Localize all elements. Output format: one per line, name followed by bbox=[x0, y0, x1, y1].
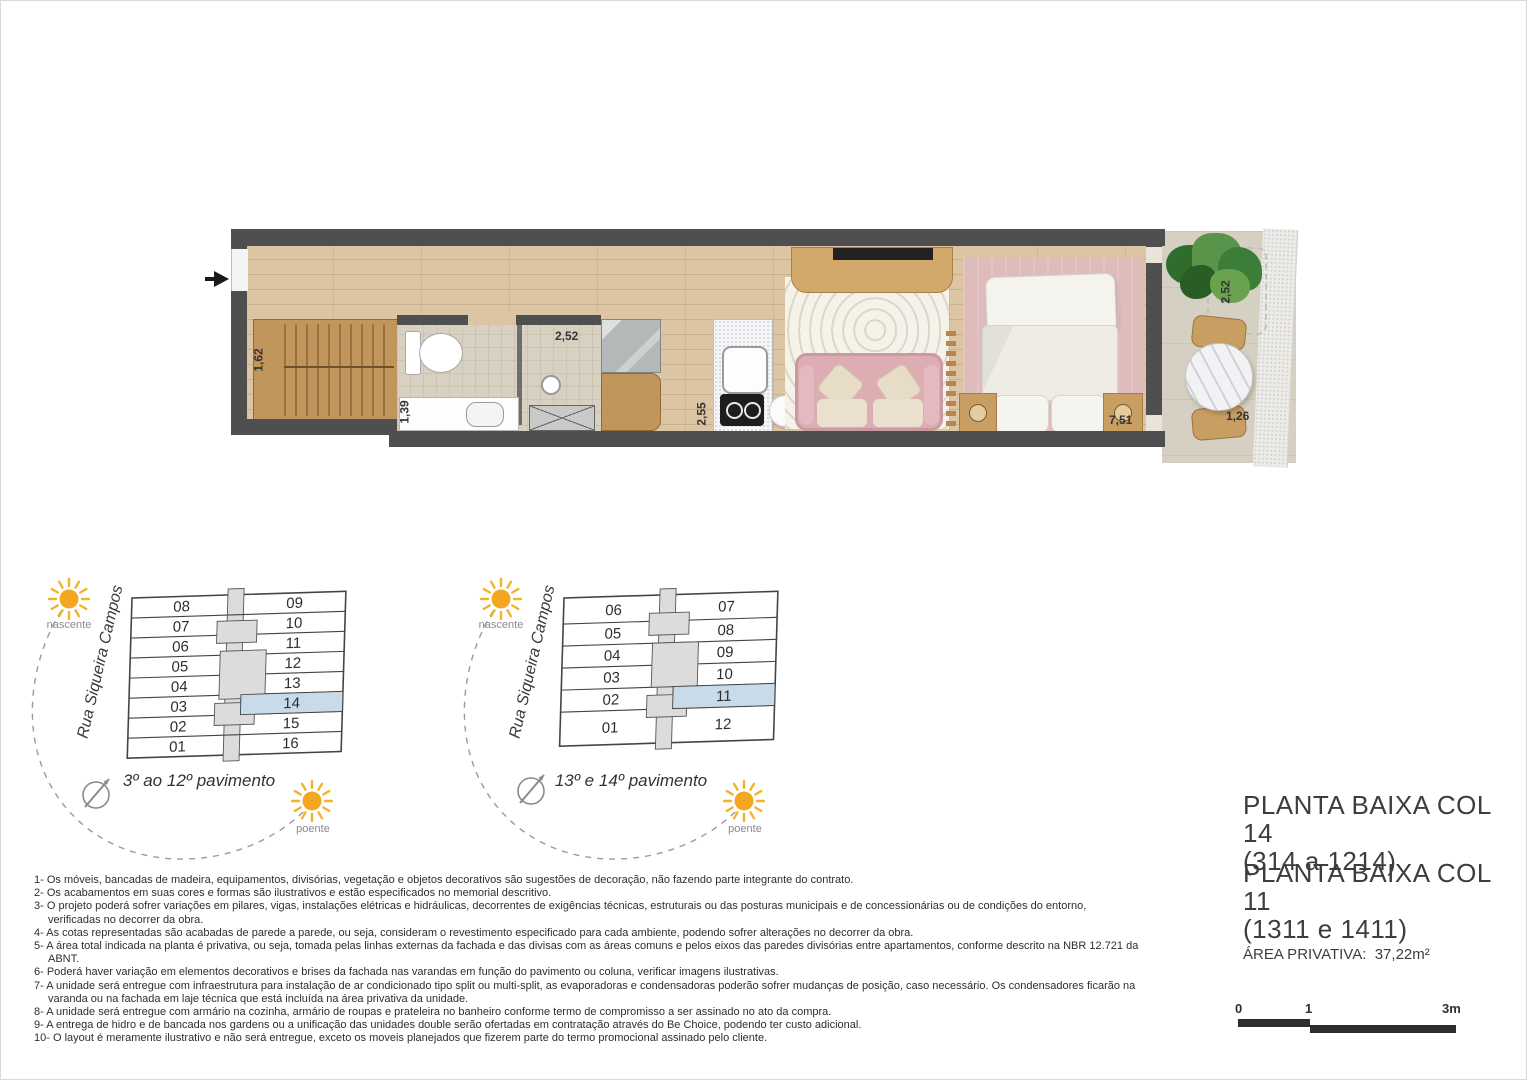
keyplan-2-caption: 13º e 14º pavimento bbox=[551, 771, 711, 791]
lamp-icon bbox=[969, 404, 987, 422]
keyplan-1-caption: 3º ao 12º pavimento bbox=[119, 771, 279, 791]
shower-mixer-icon bbox=[541, 375, 561, 395]
unit-cell: 03 bbox=[170, 698, 187, 716]
disclaimer-notes: 1- Os móveis, bancadas de madeira, equip… bbox=[34, 874, 1139, 1046]
note-item: 9- A entrega de hidro e de bancada nos g… bbox=[34, 1019, 1139, 1032]
sun-west-label: poente bbox=[713, 823, 777, 835]
north-compass-icon bbox=[511, 769, 551, 813]
dim-balcony-width: 1,26 bbox=[1226, 409, 1249, 423]
note-item: 1- Os móveis, bancadas de madeira, equip… bbox=[34, 874, 1139, 887]
north-compass-icon bbox=[76, 773, 116, 817]
unit-cell: 16 bbox=[282, 735, 299, 753]
scale-tick-3m: 3m bbox=[1442, 1001, 1461, 1016]
shaft-box bbox=[529, 405, 595, 431]
bathroom: 2,52 bbox=[397, 321, 601, 431]
unit-cell: 10 bbox=[716, 666, 733, 684]
sofa-seat-right bbox=[873, 399, 923, 427]
dim-bath-depth: 1,39 bbox=[398, 400, 412, 423]
plan-title-2: PLANTA BAIXA COL 11 bbox=[1243, 859, 1526, 915]
unit-cell: 02 bbox=[602, 691, 619, 709]
unit-cell: 01 bbox=[169, 738, 186, 756]
cabinet-wood bbox=[601, 373, 661, 431]
sofa bbox=[795, 353, 943, 431]
unit-cell-highlighted: 14 bbox=[283, 695, 300, 713]
unit-cell: 06 bbox=[172, 638, 189, 656]
note-item: 2- Os acabamentos em suas cores e formas… bbox=[34, 887, 1139, 900]
unit-cell: 06 bbox=[605, 602, 622, 620]
sun-icon-nascente bbox=[478, 576, 524, 622]
dim-kitchen-depth: 2,55 bbox=[695, 402, 709, 425]
unit-cell: 09 bbox=[286, 595, 303, 613]
kitchen-counter bbox=[713, 319, 773, 433]
note-item: 8- A unidade será entregue com armário n… bbox=[34, 1006, 1139, 1019]
key-plan-2: 06 05 04 03 02 01 07 08 09 10 11 12 bbox=[548, 586, 798, 786]
balcony-door-gap-top bbox=[1146, 247, 1162, 263]
unit-cell: 07 bbox=[718, 598, 735, 616]
slat-divider bbox=[946, 331, 956, 429]
unit-cell-highlighted: 11 bbox=[716, 688, 732, 705]
plan-subtitle-2: (1311 e 1411) bbox=[1243, 915, 1526, 943]
unit-cell: 05 bbox=[604, 625, 621, 643]
scale-tick-0: 0 bbox=[1235, 1001, 1242, 1016]
wardrobe bbox=[253, 319, 399, 421]
unit-cell: 12 bbox=[714, 716, 731, 734]
wall-top bbox=[231, 229, 1165, 246]
key-plan-1: 08 07 06 05 04 03 02 01 09 10 11 12 13 1… bbox=[116, 586, 366, 786]
plan-title-1: PLANTA BAIXA COL 14 bbox=[1243, 791, 1526, 847]
balcony: 2,52 1,26 bbox=[1162, 231, 1296, 463]
unit-cell: 04 bbox=[604, 647, 621, 665]
unit-cell: 04 bbox=[171, 678, 188, 696]
unit-cell: 03 bbox=[603, 669, 620, 687]
tv-icon bbox=[833, 248, 933, 260]
sun-east-label: nascente bbox=[37, 619, 101, 631]
sun-east-label: nascente bbox=[469, 619, 533, 631]
cabinet-mirror bbox=[601, 319, 661, 373]
scale-bar-segment-1 bbox=[1238, 1019, 1310, 1027]
note-item: 10- O layout é meramente ilustrativo e n… bbox=[34, 1032, 1139, 1045]
bed bbox=[979, 271, 1119, 433]
bed-duvet bbox=[982, 325, 1118, 401]
area-value: 37,22m² bbox=[1375, 946, 1430, 963]
unit-cell: 08 bbox=[717, 622, 734, 640]
cooktop-icon bbox=[720, 394, 764, 426]
kitchen-sink-icon bbox=[722, 346, 768, 394]
unit-cell: 09 bbox=[717, 644, 734, 662]
dim-bedroom: 7,51 bbox=[1109, 413, 1132, 427]
floor-plan: 2,52 1,26 1,62 2,52 1,39 bbox=[229, 227, 1303, 467]
unit-cell: 05 bbox=[171, 658, 188, 676]
note-item: 5- A área total indicada na planta é pri… bbox=[34, 940, 1139, 966]
scale-bar-segment-2 bbox=[1310, 1025, 1456, 1033]
balcony-table bbox=[1185, 343, 1253, 411]
scale-tick-1: 1 bbox=[1305, 1001, 1312, 1016]
bed-foot-cushion-right bbox=[1051, 395, 1107, 433]
unit-cell: 08 bbox=[173, 598, 190, 616]
wall-bottom-main bbox=[389, 431, 1165, 447]
sofa-seat-left bbox=[817, 399, 867, 427]
dim-bath-width: 2,52 bbox=[555, 329, 578, 343]
drawing-sheet: 2,52 1,26 1,62 2,52 1,39 bbox=[0, 0, 1527, 1080]
unit-cell: 12 bbox=[284, 655, 301, 673]
dim-balcony-depth: 2,52 bbox=[1219, 280, 1233, 303]
toilet-bowl-icon bbox=[419, 333, 463, 373]
note-item: 3- O projeto poderá sofrer variações em … bbox=[34, 900, 1139, 926]
sun-icon-poente bbox=[289, 778, 335, 824]
unit-cell: 02 bbox=[170, 718, 187, 736]
sun-icon-nascente bbox=[46, 576, 92, 622]
plant-icon bbox=[1166, 233, 1266, 309]
dim-closet: 1,62 bbox=[252, 348, 266, 371]
unit-cell: 11 bbox=[285, 635, 301, 652]
note-item: 4- As cotas representadas são acabadas d… bbox=[34, 927, 1139, 940]
sun-icon-poente bbox=[721, 778, 767, 824]
bed-foot-cushion-left bbox=[993, 395, 1049, 433]
unit-cell: 10 bbox=[285, 615, 302, 633]
sink-basin-icon bbox=[466, 402, 504, 427]
vanity-counter bbox=[399, 397, 519, 431]
unit-cell: 15 bbox=[282, 715, 299, 733]
balcony-door-gap-bottom bbox=[1146, 415, 1162, 431]
sun-west-label: poente bbox=[281, 823, 345, 835]
unit-cell: 07 bbox=[172, 618, 189, 636]
private-area: ÁREA PRIVATIVA: 37,22m² bbox=[1243, 946, 1526, 963]
wall-bottom-left bbox=[231, 419, 397, 435]
bathroom-door-gap bbox=[468, 315, 516, 325]
entry-door-gap bbox=[231, 249, 248, 291]
entrance-arrow-icon bbox=[203, 269, 231, 289]
title-block-2: PLANTA BAIXA COL 11 (1311 e 1411) ÁREA P… bbox=[1243, 859, 1526, 963]
unit-cell: 13 bbox=[284, 675, 301, 693]
nightstand-left bbox=[959, 393, 997, 433]
note-item: 7- A unidade será entregue com infraestr… bbox=[34, 980, 1139, 1006]
note-item: 6- Poderá haver variação em elementos de… bbox=[34, 966, 1139, 979]
unit-cell: 01 bbox=[601, 719, 618, 737]
area-label: ÁREA PRIVATIVA: bbox=[1243, 946, 1366, 963]
